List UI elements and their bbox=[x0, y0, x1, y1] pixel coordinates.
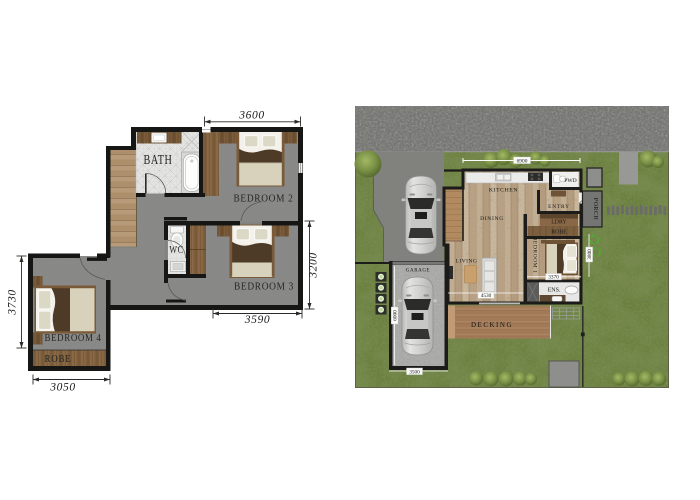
svg-text:PWD: PWD bbox=[564, 178, 576, 184]
svg-text:LDRY: LDRY bbox=[551, 220, 567, 226]
svg-text:3600: 3600 bbox=[238, 110, 264, 122]
svg-text:ENS.: ENS. bbox=[548, 288, 561, 294]
svg-text:4530: 4530 bbox=[481, 293, 492, 299]
svg-text:PORCH: PORCH bbox=[592, 198, 598, 221]
svg-text:3590: 3590 bbox=[244, 314, 270, 326]
svg-text:6000: 6000 bbox=[392, 310, 398, 321]
svg-text:KITCHEN: KITCHEN bbox=[489, 188, 518, 194]
svg-text:6900: 6900 bbox=[517, 158, 528, 164]
svg-text:ROBE: ROBE bbox=[45, 354, 72, 365]
svg-text:BEDROOM 1: BEDROOM 1 bbox=[532, 237, 538, 274]
svg-text:GARAGE: GARAGE bbox=[406, 269, 430, 274]
svg-text:3800: 3800 bbox=[587, 249, 593, 260]
svg-text:ROBE: ROBE bbox=[551, 230, 567, 236]
svg-text:DINING: DINING bbox=[480, 216, 504, 222]
svg-text:3200: 3200 bbox=[308, 252, 320, 278]
svg-text:ENTRY: ENTRY bbox=[548, 204, 570, 210]
svg-text:WC: WC bbox=[169, 244, 184, 256]
svg-text:3050: 3050 bbox=[49, 382, 75, 394]
svg-text:3370: 3370 bbox=[548, 275, 559, 281]
svg-text:3500: 3500 bbox=[409, 369, 420, 375]
svg-text:3730: 3730 bbox=[7, 289, 19, 315]
svg-text:BEDROOM 3: BEDROOM 3 bbox=[234, 281, 294, 293]
svg-text:BEDROOM 2: BEDROOM 2 bbox=[234, 193, 294, 205]
svg-text:BEDROOM 4: BEDROOM 4 bbox=[45, 332, 102, 344]
svg-text:LIVING: LIVING bbox=[456, 259, 478, 265]
svg-text:BATH: BATH bbox=[144, 152, 173, 167]
svg-text:DECKING: DECKING bbox=[471, 321, 513, 329]
